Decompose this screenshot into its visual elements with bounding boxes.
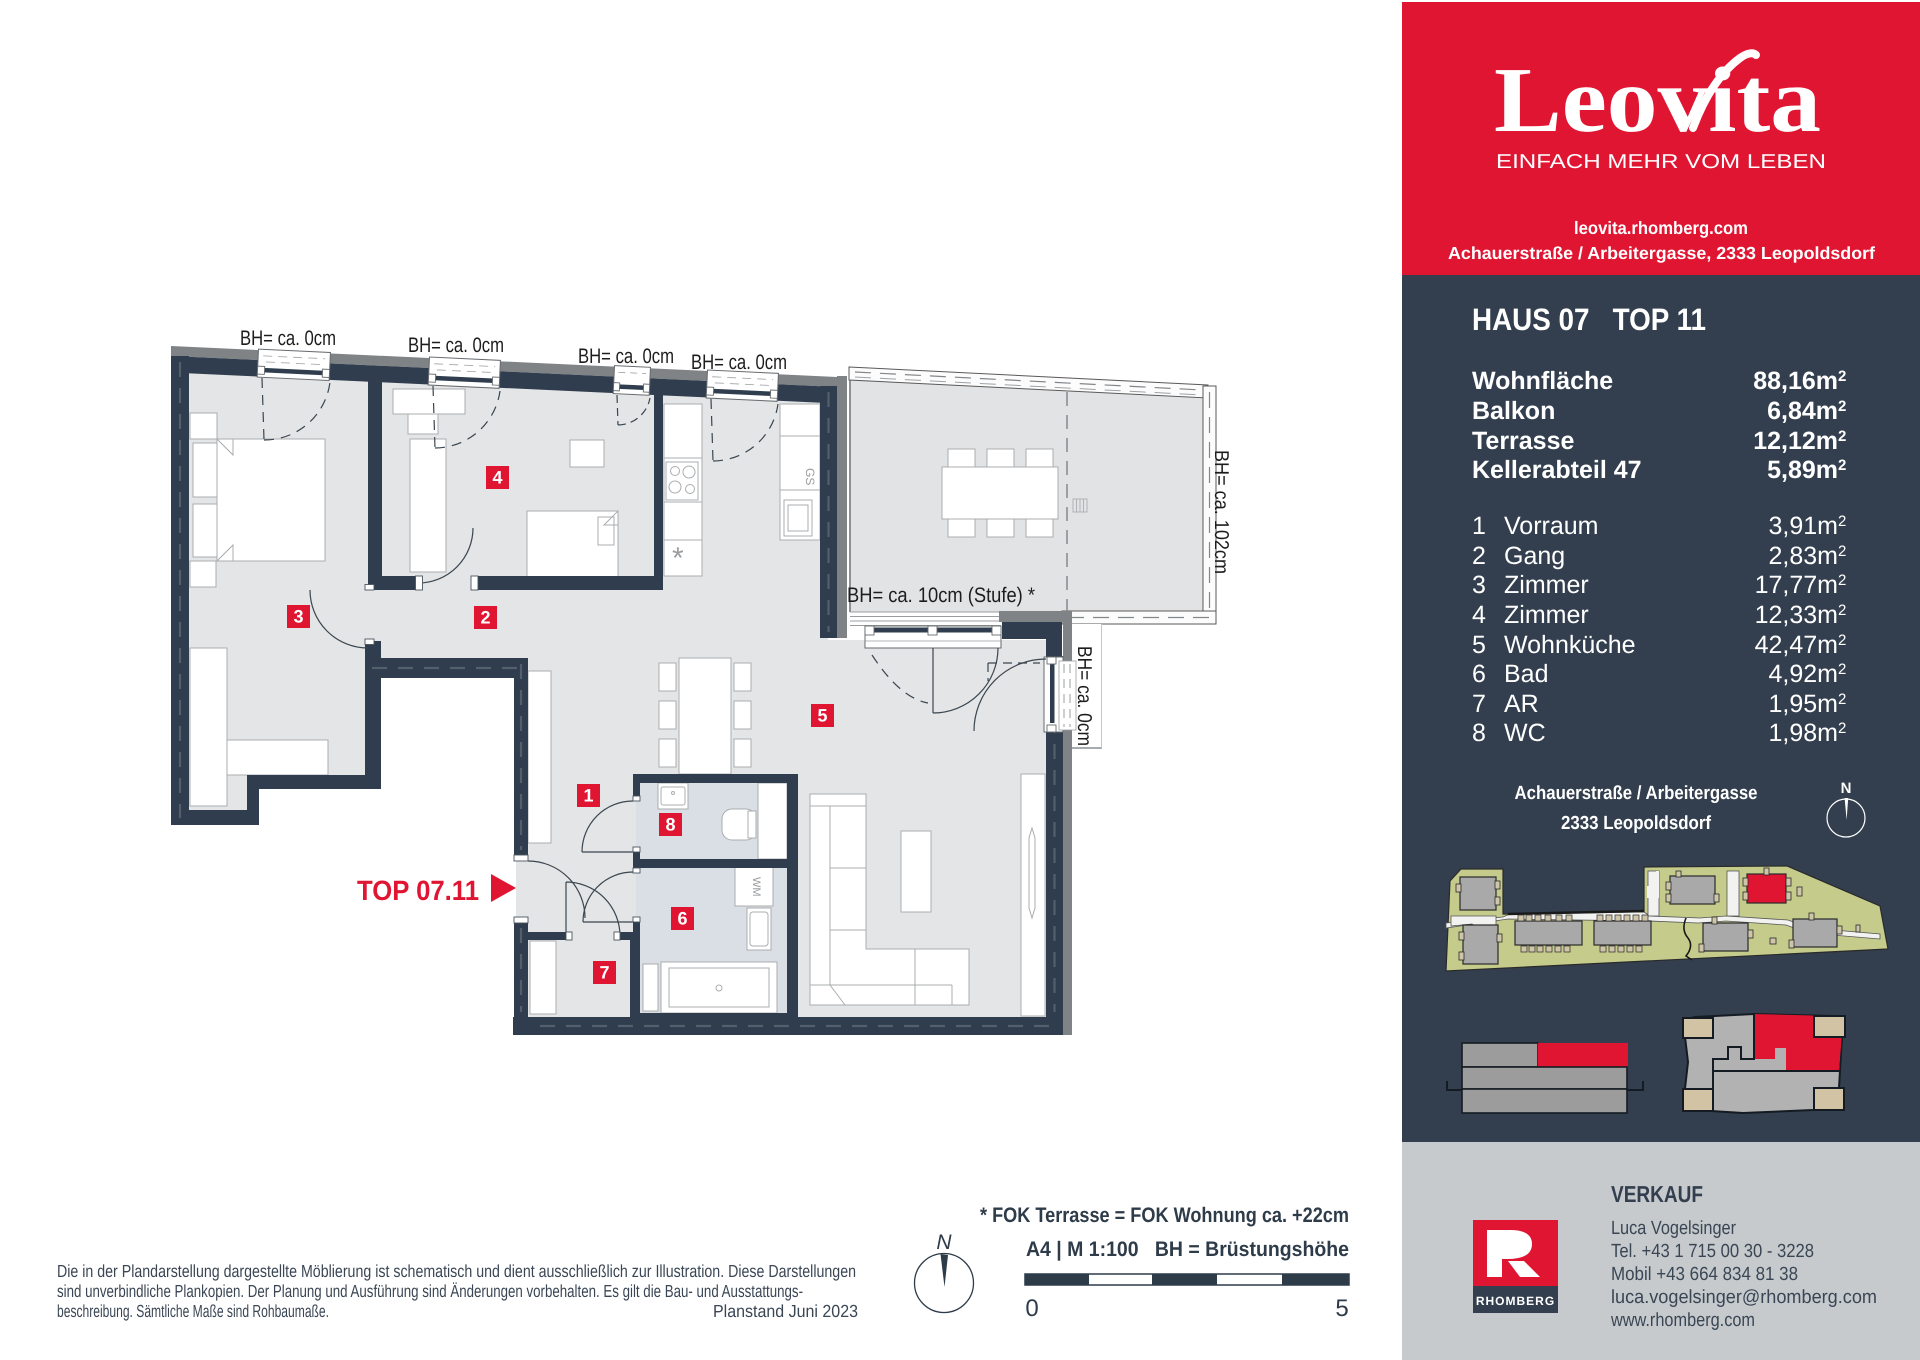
svg-text:Leovita: Leovita bbox=[1494, 49, 1821, 152]
svg-text:2: 2 bbox=[1838, 428, 1846, 445]
svg-text:BH= ca. 0cm: BH= ca. 0cm bbox=[240, 327, 336, 350]
svg-text:12,33m: 12,33m bbox=[1755, 601, 1838, 629]
svg-text:6: 6 bbox=[1472, 660, 1486, 688]
svg-text:2: 2 bbox=[1838, 720, 1846, 737]
svg-text:AR: AR bbox=[1504, 690, 1539, 718]
svg-text:2: 2 bbox=[1838, 632, 1846, 649]
svg-text:Mobil +43 664 834 81 38: Mobil +43 664 834 81 38 bbox=[1611, 1264, 1798, 1285]
svg-text:0: 0 bbox=[1025, 1295, 1038, 1322]
svg-text:2: 2 bbox=[480, 608, 490, 628]
svg-text:2: 2 bbox=[1838, 368, 1846, 385]
svg-text:42,47m: 42,47m bbox=[1755, 631, 1838, 659]
svg-text:Zimmer: Zimmer bbox=[1504, 571, 1589, 599]
svg-text:2,83m: 2,83m bbox=[1769, 542, 1838, 570]
svg-text:3,91m: 3,91m bbox=[1769, 512, 1838, 540]
svg-text:1: 1 bbox=[583, 786, 593, 806]
svg-text:6,84m: 6,84m bbox=[1767, 397, 1838, 425]
svg-text:2: 2 bbox=[1838, 457, 1846, 474]
svg-text:2333 Leopoldsdorf: 2333 Leopoldsdorf bbox=[1561, 813, 1712, 834]
svg-text:Tel. +43 1 715 00 30 - 3228: Tel. +43 1 715 00 30 - 3228 bbox=[1611, 1241, 1814, 1262]
svg-text:2: 2 bbox=[1838, 602, 1846, 619]
svg-text:WC: WC bbox=[1504, 719, 1546, 747]
svg-text:VERKAUF: VERKAUF bbox=[1611, 1181, 1703, 1207]
svg-text:Die in der Plandarstellung dar: Die in der Plandarstellung dargestellte … bbox=[57, 1261, 856, 1281]
svg-text:HAUS 07 TOP 11: HAUS 07 TOP 11 bbox=[1472, 302, 1706, 337]
svg-text:*: * bbox=[672, 542, 684, 575]
svg-text:2: 2 bbox=[1838, 691, 1846, 708]
svg-text:Luca Vogelsinger: Luca Vogelsinger bbox=[1611, 1218, 1737, 1239]
svg-text:4: 4 bbox=[492, 468, 502, 488]
svg-text:BH= ca. 102cm: BH= ca. 102cm bbox=[1210, 450, 1232, 574]
svg-text:8: 8 bbox=[665, 815, 675, 835]
svg-text:* FOK Terrasse = FOK Wohnung c: * FOK Terrasse = FOK Wohnung ca. +22cm bbox=[980, 1204, 1349, 1227]
svg-text:Wohnküche: Wohnküche bbox=[1504, 631, 1636, 659]
svg-text:5: 5 bbox=[817, 706, 827, 726]
svg-text:Wohnfläche: Wohnfläche bbox=[1472, 367, 1613, 395]
svg-text:1,95m: 1,95m bbox=[1769, 690, 1838, 718]
svg-text:2: 2 bbox=[1838, 661, 1846, 678]
svg-text:4,92m: 4,92m bbox=[1769, 660, 1838, 688]
svg-text:5: 5 bbox=[1472, 631, 1486, 659]
svg-text:3: 3 bbox=[1472, 571, 1486, 599]
svg-text:N: N bbox=[936, 1231, 952, 1254]
svg-text:5,89m: 5,89m bbox=[1767, 456, 1838, 484]
svg-text:A4 | M 1:100 BH = Brüstungsh: A4 | M 1:100 BH = Brüstungshöhe bbox=[1026, 1238, 1349, 1261]
svg-text:Achauerstraße / Arbeitergasse,: Achauerstraße / Arbeitergasse, 2333 Leop… bbox=[1448, 243, 1875, 263]
svg-text:12,12m: 12,12m bbox=[1753, 427, 1838, 455]
svg-text:Vorraum: Vorraum bbox=[1504, 512, 1598, 540]
svg-text:BH= ca. 0cm: BH= ca. 0cm bbox=[578, 345, 674, 368]
svg-text:Terrasse: Terrasse bbox=[1472, 427, 1574, 455]
svg-text:BH= ca. 0cm: BH= ca. 0cm bbox=[1073, 646, 1095, 746]
svg-text:BH= ca. 0cm: BH= ca. 0cm bbox=[691, 351, 787, 374]
svg-text:Planstand Juni 2023: Planstand Juni 2023 bbox=[713, 1301, 858, 1321]
svg-text:WM: WM bbox=[750, 877, 762, 897]
svg-text:Balkon: Balkon bbox=[1472, 397, 1555, 425]
svg-text:7: 7 bbox=[599, 963, 609, 983]
svg-text:1,98m: 1,98m bbox=[1769, 719, 1838, 747]
svg-text:7: 7 bbox=[1472, 690, 1486, 718]
svg-text:leovita.rhomberg.com: leovita.rhomberg.com bbox=[1574, 218, 1748, 238]
svg-text:luca.vogelsinger@rhomberg.com: luca.vogelsinger@rhomberg.com bbox=[1611, 1287, 1877, 1308]
svg-text:TOP 07.11: TOP 07.11 bbox=[357, 875, 479, 906]
svg-text:2: 2 bbox=[1838, 513, 1846, 530]
svg-text:3: 3 bbox=[293, 607, 303, 627]
svg-text:2: 2 bbox=[1472, 542, 1486, 570]
svg-text:17,77m: 17,77m bbox=[1755, 571, 1838, 599]
svg-text:5: 5 bbox=[1335, 1295, 1348, 1322]
svg-text:beschreibung. Sämtliche Maße s: beschreibung. Sämtliche Maße sind Rohbau… bbox=[57, 1301, 329, 1321]
svg-text:Kellerabteil 47: Kellerabteil 47 bbox=[1472, 456, 1642, 484]
svg-text:Gang: Gang bbox=[1504, 542, 1565, 570]
svg-text:BH= ca. 0cm: BH= ca. 0cm bbox=[408, 334, 504, 357]
svg-text:1: 1 bbox=[1472, 512, 1486, 540]
svg-text:sind unverbindliche Plankopien: sind unverbindliche Plankopien. Der Plan… bbox=[57, 1281, 803, 1301]
svg-text:2: 2 bbox=[1838, 543, 1846, 560]
svg-text:6: 6 bbox=[677, 909, 687, 929]
svg-text:88,16m: 88,16m bbox=[1753, 367, 1838, 395]
svg-text:GS: GS bbox=[803, 468, 817, 485]
svg-text:BH= ca. 10cm (Stufe) *: BH= ca. 10cm (Stufe) * bbox=[847, 584, 1035, 607]
svg-text:EINFACH MEHR VOM LEBEN: EINFACH MEHR VOM LEBEN bbox=[1496, 151, 1826, 173]
svg-text:www.rhomberg.com: www.rhomberg.com bbox=[1610, 1310, 1755, 1331]
svg-text:2: 2 bbox=[1838, 398, 1846, 415]
svg-text:8: 8 bbox=[1472, 719, 1486, 747]
svg-text:4: 4 bbox=[1472, 601, 1486, 629]
svg-text:Bad: Bad bbox=[1504, 660, 1548, 688]
svg-text:Achauerstraße / Arbeitergasse: Achauerstraße / Arbeitergasse bbox=[1515, 783, 1758, 804]
svg-text:2: 2 bbox=[1838, 572, 1846, 589]
svg-text:Zimmer: Zimmer bbox=[1504, 601, 1589, 629]
svg-text:N: N bbox=[1841, 780, 1852, 797]
svg-text:RHOMBERG: RHOMBERG bbox=[1476, 1294, 1555, 1308]
